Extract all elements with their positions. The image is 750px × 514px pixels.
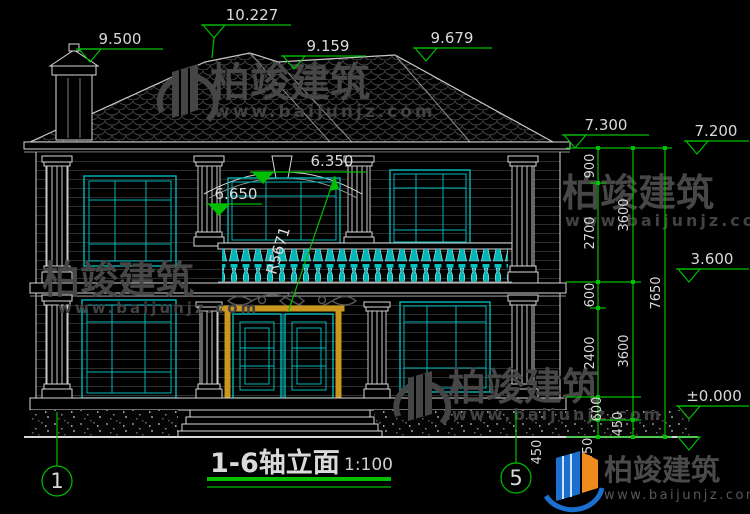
door-post-left <box>225 311 230 398</box>
keystone <box>272 156 292 178</box>
svg-text:450: 450 <box>611 412 626 437</box>
drawing-canvas: 柏竣建筑 www.baijunjz.com 柏竣建筑 www.baijunjz.… <box>0 0 750 514</box>
svg-text:2400: 2400 <box>583 336 598 369</box>
cad-elevation-drawing: 柏竣建筑 www.baijunjz.com 柏竣建筑 www.baijunjz.… <box>0 0 750 514</box>
svg-text:3600: 3600 <box>617 334 632 367</box>
eave-fascia <box>24 142 570 149</box>
svg-text:600: 600 <box>583 283 598 308</box>
balcony-balustrade <box>218 243 512 282</box>
svg-text:9.500: 9.500 <box>99 30 142 48</box>
svg-text:9.159: 9.159 <box>307 37 350 55</box>
svg-text:柏竣建筑: 柏竣建筑 <box>448 365 600 409</box>
title-underline-thick <box>207 477 391 481</box>
drawing-title: 1-6轴立面 <box>210 447 340 479</box>
pilaster-2f-right <box>508 156 538 283</box>
footer-site: www.baijunjz.com <box>604 488 750 503</box>
svg-text:600: 600 <box>590 397 605 422</box>
ground-fill-left <box>30 410 178 437</box>
svg-text:7.300: 7.300 <box>585 116 628 134</box>
svg-text:7650: 7650 <box>649 276 664 309</box>
svg-text:7.200: 7.200 <box>695 122 738 140</box>
svg-text:9.679: 9.679 <box>431 29 474 47</box>
svg-text:3600: 3600 <box>617 198 632 231</box>
svg-text:www.baijunjz.com: www.baijunjz.com <box>58 299 259 317</box>
svg-text:1: 1 <box>50 469 63 493</box>
svg-text:柏竣建筑: 柏竣建筑 <box>42 258 194 302</box>
watermark-brand: 柏竣建筑 <box>210 60 370 106</box>
svg-text:±0.000: ±0.000 <box>686 387 742 405</box>
footer-brand: 柏竣建筑 <box>604 453 720 487</box>
svg-text:6.650: 6.650 <box>215 185 258 203</box>
svg-text:900: 900 <box>583 154 598 179</box>
svg-text:5: 5 <box>509 466 522 490</box>
svg-text:3.600: 3.600 <box>691 250 734 268</box>
door-post-right <box>336 311 341 398</box>
pilaster-door-right <box>364 302 390 398</box>
watermark-site: www.baijunjz.com <box>214 102 436 122</box>
step-dim-label: 450 <box>530 440 545 465</box>
entrance-steps <box>178 410 382 437</box>
svg-text:2700: 2700 <box>583 216 598 249</box>
svg-text:6.350: 6.350 <box>311 152 354 170</box>
svg-text:10.227: 10.227 <box>226 6 279 24</box>
drawing-scale: 1:100 <box>344 455 393 475</box>
